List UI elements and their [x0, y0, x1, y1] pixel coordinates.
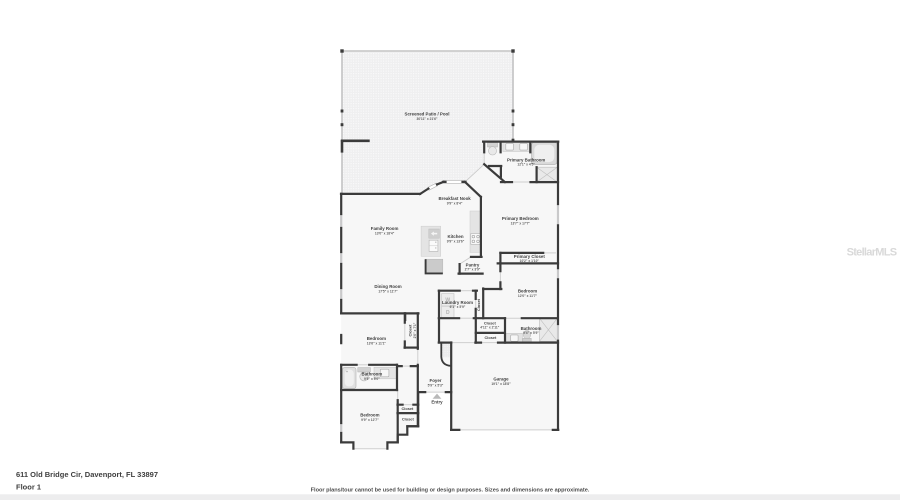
svg-text:Kitchen: Kitchen: [447, 234, 463, 239]
svg-text:Bedroom: Bedroom: [518, 288, 537, 293]
svg-text:Dining Room: Dining Room: [374, 284, 401, 289]
svg-text:Screened Patio / Pool: Screened Patio / Pool: [405, 111, 450, 116]
svg-text:Family Room: Family Room: [371, 226, 399, 231]
svg-text:2'0" x 7'1": 2'0" x 7'1": [413, 322, 417, 338]
svg-text:D: D: [446, 310, 450, 316]
svg-text:Garage: Garage: [493, 377, 509, 382]
svg-text:6'1" x 5'9": 6'1" x 5'9": [450, 305, 466, 309]
svg-text:9'9" x 5'0": 9'9" x 5'0": [364, 377, 380, 381]
svg-text:Bedroom: Bedroom: [367, 336, 386, 341]
svg-text:Entry: Entry: [431, 399, 443, 404]
svg-text:StellarMLS: StellarMLS: [847, 247, 897, 259]
svg-text:12'1" x 4'5": 12'1" x 4'5": [517, 163, 535, 167]
svg-text:Bathroom: Bathroom: [362, 372, 383, 377]
svg-text:Breakfast Nook: Breakfast Nook: [438, 196, 471, 201]
svg-text:Closet: Closet: [484, 335, 497, 340]
svg-text:2'7" x 3'9": 2'7" x 3'9": [465, 268, 481, 272]
svg-text:9'9" x 8'4": 9'9" x 8'4": [447, 201, 463, 205]
svg-text:Closet: Closet: [401, 406, 414, 411]
svg-text:19'1" x 18'8": 19'1" x 18'8": [491, 382, 511, 386]
svg-text:13'0" x 18'4": 13'0" x 18'4": [375, 232, 395, 236]
svg-text:13'7" x 17'7": 13'7" x 17'7": [511, 221, 531, 225]
svg-text:9'9" x 13'6": 9'9" x 13'6": [447, 239, 465, 243]
svg-text:13'6" x 11'1": 13'6" x 11'1": [367, 342, 387, 346]
svg-text:Floor plans/tour cannot be use: Floor plans/tour cannot be used for buil…: [311, 488, 590, 494]
svg-text:Closet: Closet: [476, 298, 481, 311]
svg-text:9'4" x 5'9": 9'4" x 5'9": [523, 331, 539, 335]
svg-text:4'11" x 2'11": 4'11" x 2'11": [480, 325, 499, 329]
svg-text:10'2" x 1'10": 10'2" x 1'10": [520, 259, 540, 263]
svg-text:9'9" x 12'7": 9'9" x 12'7": [361, 418, 379, 422]
svg-text:30'11" x 21'6": 30'11" x 21'6": [416, 117, 437, 121]
svg-text:Bedroom: Bedroom: [360, 412, 379, 417]
svg-text:12'0" x 11'7": 12'0" x 11'7": [518, 294, 538, 298]
svg-text:611 Old Bridge Cir, Davenport,: 611 Old Bridge Cir, Davenport, FL 33897: [16, 470, 158, 479]
svg-text:17'5" x 11'7": 17'5" x 11'7": [378, 289, 398, 293]
svg-text:5'9" x 5'3": 5'9" x 5'3": [428, 383, 444, 387]
svg-text:Primary Bedroom: Primary Bedroom: [502, 216, 539, 221]
svg-text:Floor 1: Floor 1: [16, 483, 41, 492]
svg-text:Closet: Closet: [402, 416, 415, 421]
